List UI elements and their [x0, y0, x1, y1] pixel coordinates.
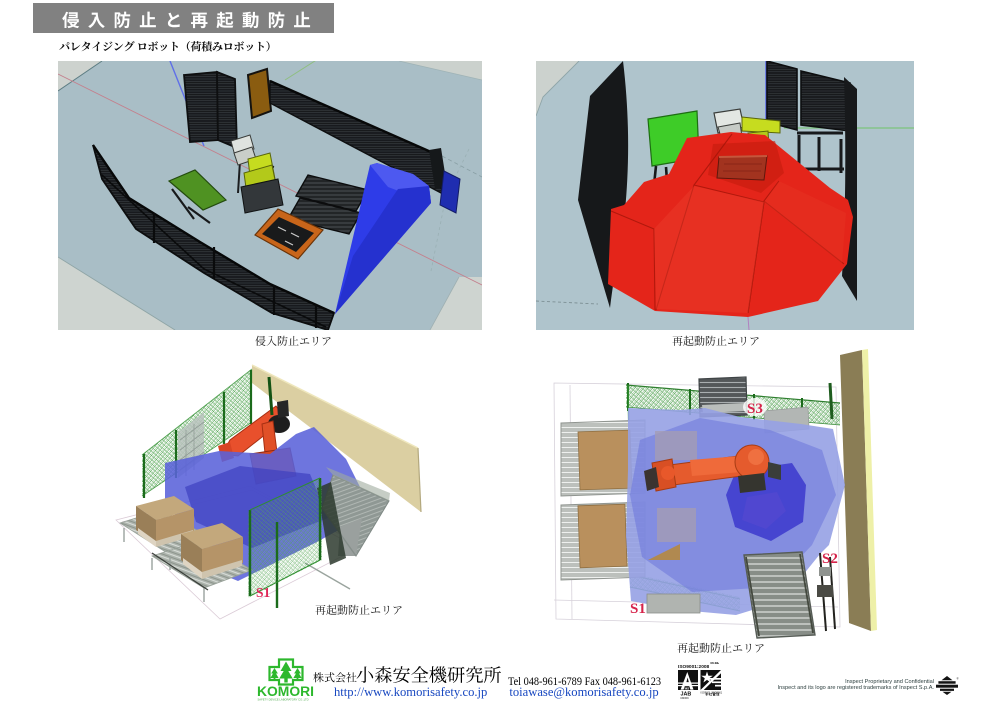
svg-text:SAFETY DEVICE LABORATORY CO.,L: SAFETY DEVICE LABORATORY CO.,LTD	[258, 698, 309, 702]
svg-text:S2: S2	[822, 551, 838, 567]
svg-text:®: ®	[957, 677, 960, 681]
svg-text:ISO9001:2008: ISO9001:2008	[678, 664, 710, 670]
svg-text:MS: MS	[685, 687, 690, 691]
svg-text:CM009: CM009	[680, 696, 689, 700]
svg-text:S3: S3	[747, 401, 763, 417]
svg-text:S1: S1	[256, 585, 271, 600]
svg-text:KOMORI: KOMORI	[257, 684, 314, 699]
svg-text:S1: S1	[630, 601, 646, 617]
svg-text:ISO9001 JISQ9001: ISO9001 JISQ9001	[701, 692, 723, 695]
